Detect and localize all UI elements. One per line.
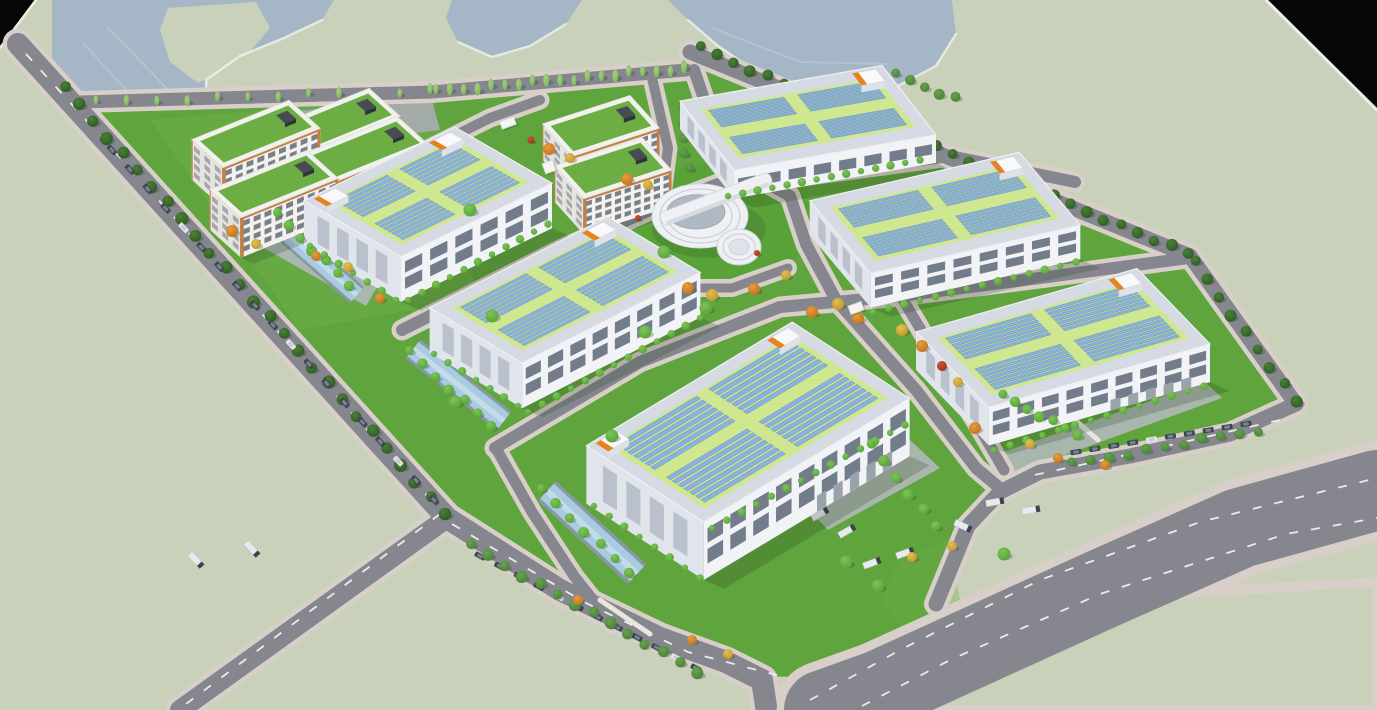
poplar-tree	[276, 91, 281, 102]
mid-tree	[905, 75, 916, 86]
hedge-bush	[813, 176, 819, 182]
hedge-bush	[539, 400, 546, 407]
mid-tree	[589, 607, 599, 617]
mid-tree	[891, 69, 900, 78]
bright-tree	[486, 310, 499, 323]
mid-tree	[639, 640, 649, 650]
hedge-bush	[334, 260, 342, 268]
dark-tree	[1166, 239, 1178, 251]
hedge-bush	[1025, 270, 1032, 277]
gold-tree	[343, 262, 353, 272]
gold-tree	[907, 552, 917, 562]
hedge-bush	[697, 315, 703, 321]
bright-tree	[578, 527, 589, 538]
hedge-bush	[1119, 406, 1127, 414]
bright-tree	[1010, 396, 1021, 407]
mid-tree	[482, 549, 494, 561]
poplar-tree	[571, 75, 576, 86]
bright-tree	[891, 473, 901, 483]
dark-tree	[100, 132, 113, 145]
hedge-bush	[525, 409, 531, 415]
bright-tree	[273, 208, 282, 217]
gold-tree	[953, 377, 963, 387]
dark-tree	[1291, 396, 1303, 408]
red-tree	[937, 361, 947, 371]
poplar-tree	[474, 83, 480, 96]
orange-tree	[806, 306, 818, 318]
bright-tree	[596, 539, 606, 549]
dark-tree	[118, 147, 130, 159]
poplar-tree	[397, 89, 401, 98]
mid-tree	[553, 590, 563, 600]
gold-tree	[723, 649, 733, 659]
hedge-bush	[932, 293, 939, 300]
hedge-bush	[737, 508, 745, 516]
bright-tree	[931, 521, 941, 531]
hedge-bush	[502, 243, 509, 250]
mid-tree	[1067, 457, 1076, 466]
hedge-bush	[1057, 263, 1063, 269]
orange-tree	[311, 251, 321, 261]
mid-tree	[1161, 443, 1170, 452]
hedge-bush	[798, 178, 806, 186]
poplar-tree	[681, 60, 687, 73]
dark-tree	[1149, 236, 1159, 246]
bright-tree	[449, 396, 462, 409]
dark-tree	[367, 424, 380, 437]
hedge-bush	[668, 330, 675, 337]
hedge-bush	[666, 553, 674, 561]
hedge-bush	[723, 516, 730, 523]
dark-tree	[711, 49, 723, 61]
hedge-bush	[489, 251, 495, 257]
hedge-bush	[739, 190, 746, 197]
hedge-bush	[500, 393, 508, 401]
bright-tree	[284, 220, 295, 231]
dark-tree	[60, 81, 71, 92]
hedge-bush	[1072, 258, 1079, 265]
bright-tree	[658, 246, 671, 259]
hedge-bush	[591, 503, 597, 509]
hedge-bush	[858, 168, 864, 174]
bright-tree	[700, 302, 713, 315]
bright-tree	[639, 326, 652, 339]
gold-tree	[832, 298, 844, 310]
poplar-tree	[94, 95, 98, 104]
dark-tree	[1191, 256, 1201, 266]
orange-tree	[226, 225, 238, 237]
dark-tree	[1065, 198, 1075, 208]
hedge-bush	[393, 297, 399, 303]
poplar-tree	[427, 83, 432, 94]
poplar-tree	[654, 65, 660, 77]
bright-tree	[611, 554, 620, 563]
hedge-bush	[753, 501, 759, 507]
hedge-bush	[638, 345, 646, 353]
hedge-bush	[812, 469, 819, 476]
hedge-bush	[364, 278, 371, 285]
orange-tree	[621, 173, 633, 185]
bright-tree	[998, 390, 1007, 399]
hedge-bush	[1088, 417, 1094, 423]
poplar-tree	[447, 83, 453, 95]
hedge-bush	[769, 184, 775, 190]
hedge-bush	[682, 565, 688, 571]
hedge-bush	[696, 574, 703, 581]
dark-tree	[948, 149, 958, 159]
hedge-bush	[994, 277, 1002, 285]
bright-tree	[1048, 415, 1058, 425]
dark-tree	[1241, 326, 1252, 337]
facade-trim	[543, 124, 544, 161]
red-tree	[528, 137, 535, 144]
dark-tree	[189, 230, 201, 242]
orange-tree	[1053, 453, 1063, 463]
bright-tree	[443, 385, 454, 396]
hedge-bush	[709, 525, 715, 531]
hedge-bush	[963, 286, 969, 292]
hedge-bush	[681, 322, 689, 330]
mid-tree	[675, 657, 685, 667]
hedge-bush	[1136, 402, 1142, 408]
hedge-bush	[1039, 432, 1045, 438]
hedge-bush	[725, 193, 731, 199]
orange-tree	[969, 422, 981, 434]
hedge-bush	[447, 274, 453, 280]
hedge-bush	[605, 513, 612, 520]
mid-tree	[1216, 431, 1226, 441]
poplar-tree	[433, 84, 438, 95]
poplar-tree	[124, 95, 129, 106]
dark-tree	[1132, 227, 1144, 239]
bright-tree	[918, 503, 929, 514]
hedge-bush	[544, 220, 551, 227]
dark-tree	[696, 41, 706, 51]
hedge-bush	[418, 289, 425, 296]
gold-tree	[947, 541, 957, 551]
mid-tree	[679, 148, 689, 158]
hedge-bush	[515, 403, 521, 409]
scene-svg	[0, 0, 1377, 710]
dark-tree	[1253, 345, 1263, 355]
hedge-bush	[582, 377, 589, 384]
gold-tree	[565, 153, 575, 163]
poplar-tree	[154, 96, 159, 106]
mid-tree	[951, 92, 961, 102]
poplar-tree	[306, 87, 311, 97]
hedge-bush	[991, 447, 997, 453]
bright-tree	[1072, 430, 1083, 441]
hedge-bush	[768, 493, 775, 500]
hedge-bush	[872, 165, 879, 172]
dark-tree	[762, 70, 773, 81]
dark-tree	[1264, 362, 1276, 374]
dark-tree	[1202, 273, 1214, 285]
hedge-bush	[842, 170, 850, 178]
hedge-bush	[1167, 392, 1175, 400]
bright-tree	[606, 430, 619, 443]
bright-tree	[550, 498, 561, 509]
mid-tree	[1123, 451, 1133, 461]
orange-tree	[375, 293, 385, 303]
hedge-bush	[460, 266, 467, 273]
gold-tree	[251, 239, 261, 249]
poplar-tree	[502, 79, 507, 90]
dark-tree	[87, 116, 98, 127]
mid-tree	[1196, 433, 1207, 444]
facade-trim	[240, 217, 241, 258]
hedge-bush	[798, 477, 804, 483]
poplar-tree	[612, 69, 618, 82]
bright-tree	[344, 281, 355, 292]
hedge-bush	[782, 484, 790, 492]
dark-tree	[1225, 310, 1237, 322]
poplar-tree	[215, 91, 220, 101]
bright-tree	[998, 548, 1011, 561]
hedge-bush	[870, 309, 876, 315]
hedge-bush	[887, 430, 893, 436]
hedge-bush	[753, 186, 761, 194]
hedge-bush	[783, 181, 790, 188]
mid-tree	[1234, 429, 1245, 440]
hedge-bush	[611, 362, 617, 368]
hedge-bush	[516, 235, 524, 243]
mid-tree	[934, 89, 945, 100]
bright-tree	[902, 489, 914, 501]
hedge-bush	[654, 338, 660, 344]
bright-tree	[474, 408, 483, 417]
mid-tree	[658, 646, 670, 658]
hedge-bush	[432, 281, 440, 289]
orange-tree	[573, 595, 583, 605]
dark-tree	[439, 508, 452, 521]
poplar-tree	[246, 92, 250, 101]
bright-tree	[431, 372, 441, 382]
bright-tree	[878, 455, 890, 467]
hedge-bush	[842, 453, 848, 459]
hedge-bush	[901, 421, 908, 428]
hedge-bush	[1041, 265, 1049, 273]
bright-tree	[333, 269, 342, 278]
bright-tree	[405, 346, 414, 355]
hedge-bush	[1103, 412, 1110, 419]
dark-tree	[744, 65, 756, 77]
orange-tree	[543, 143, 555, 155]
hedge-bush	[458, 367, 466, 375]
hedge-bush	[636, 534, 642, 540]
bright-tree	[840, 556, 853, 569]
mid-tree	[516, 571, 528, 583]
hedge-bush	[473, 377, 479, 383]
dark-tree	[1081, 206, 1093, 218]
bright-tree	[872, 580, 885, 593]
hedge-bush	[486, 385, 493, 392]
hedge-bush	[1006, 441, 1013, 448]
dark-tree	[279, 328, 290, 339]
hedge-bush	[828, 173, 835, 180]
mid-tree	[920, 82, 930, 92]
mid-tree	[691, 667, 703, 679]
bright-tree	[417, 358, 428, 369]
poplar-tree	[184, 95, 189, 106]
hedge-bush	[979, 281, 986, 288]
poplar-tree	[543, 74, 549, 87]
mid-tree	[685, 163, 694, 172]
orange-tree	[682, 282, 694, 294]
red-tree	[754, 250, 760, 256]
facade-trim	[210, 190, 211, 231]
bright-tree	[464, 204, 477, 217]
dark-tree	[728, 58, 738, 68]
facade-trim	[241, 217, 244, 258]
mid-tree	[605, 617, 617, 629]
hedge-bush	[1055, 427, 1062, 434]
orange-tree	[916, 340, 928, 352]
bright-tree	[486, 421, 497, 432]
mid-tree	[1141, 444, 1152, 455]
hedge-bush	[444, 359, 451, 366]
poplar-tree	[557, 74, 563, 86]
bright-tree	[1034, 411, 1045, 422]
poplar-tree	[488, 79, 494, 91]
hedge-bush	[474, 258, 482, 266]
dark-tree	[1116, 219, 1126, 229]
mid-tree	[500, 561, 510, 571]
hedge-bush	[886, 161, 894, 169]
bright-tree	[1022, 405, 1032, 415]
hedge-bush	[568, 385, 574, 391]
hedge-bush	[1010, 274, 1016, 280]
mid-tree	[1085, 455, 1095, 465]
dark-tree	[1183, 248, 1194, 259]
hedge-bush	[431, 351, 437, 357]
facade-trim	[192, 140, 193, 181]
poplar-tree	[516, 79, 522, 91]
hedge-bush	[885, 304, 892, 311]
gold-tree	[1025, 439, 1035, 449]
orange-tree	[748, 283, 760, 295]
dark-tree	[1214, 292, 1224, 302]
mid-tree	[1254, 428, 1263, 437]
hedge-bush	[1071, 421, 1079, 429]
red-tree	[635, 215, 641, 221]
hedge-bush	[552, 392, 560, 400]
hedge-bush	[1200, 382, 1207, 389]
poplar-tree	[530, 74, 535, 85]
gold-tree	[706, 289, 718, 301]
poplar-tree	[626, 65, 632, 77]
hedge-bush	[307, 243, 313, 249]
mid-tree	[466, 539, 476, 549]
mid-tree	[535, 578, 546, 589]
poplar-tree	[584, 69, 590, 81]
hedge-bush	[947, 289, 955, 297]
hedge-bush	[902, 160, 908, 166]
hedge-bush	[595, 369, 603, 377]
aerial-render	[0, 0, 1377, 710]
poplar-tree	[461, 84, 466, 95]
gold-tree	[896, 324, 908, 336]
gold-tree	[781, 270, 791, 280]
dark-tree	[1280, 378, 1290, 388]
hedge-bush	[405, 297, 411, 303]
orange-tree	[1100, 460, 1110, 470]
hedge-bush	[857, 445, 864, 452]
poplar-tree	[336, 87, 341, 98]
hedge-bush	[917, 297, 923, 303]
hedge-bush	[625, 353, 632, 360]
hedge-bush	[651, 543, 658, 550]
bright-tree	[537, 484, 546, 493]
bright-tree	[624, 568, 635, 579]
hedge-bush	[871, 437, 879, 445]
dark-tree	[1098, 215, 1109, 226]
dark-tree	[73, 98, 86, 111]
hedge-bush	[531, 228, 537, 234]
hedge-bush	[1152, 397, 1159, 404]
poplar-tree	[599, 70, 604, 81]
bright-tree	[565, 513, 575, 523]
hedge-bush	[1185, 388, 1191, 394]
orange-tree	[687, 635, 697, 645]
bright-tree	[295, 233, 305, 243]
gold-tree	[643, 180, 653, 190]
hedge-bush	[916, 156, 923, 163]
hedge-bush	[620, 522, 628, 530]
cylinder-roof	[729, 239, 749, 255]
poplar-tree	[640, 66, 645, 77]
hedge-bush	[827, 460, 835, 468]
hedge-bush	[900, 300, 908, 308]
mid-tree	[1179, 440, 1189, 450]
poplar-tree	[668, 66, 673, 77]
mid-tree	[622, 628, 633, 639]
